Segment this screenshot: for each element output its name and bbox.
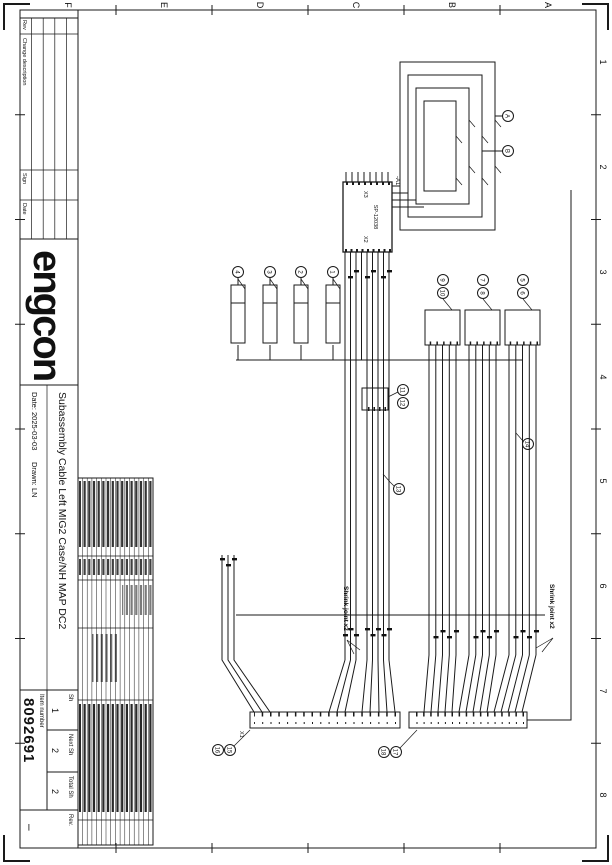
revision-header: Change description	[21, 38, 27, 85]
terminal-refs: A B	[482, 111, 514, 157]
ref-circle-label: 6	[519, 291, 525, 295]
grid-letter: C	[351, 2, 361, 9]
title-block: Rev Change description Sign Date engcon …	[20, 10, 78, 848]
grid-number: 4	[598, 374, 608, 379]
sheet-label: Sh	[67, 694, 73, 701]
ref-circle-label: 18	[380, 749, 386, 756]
ref-circle-label: 1	[329, 270, 335, 274]
ref-circle-label: 2	[297, 270, 303, 274]
item-number-label: Item number	[38, 694, 44, 728]
connector-strip-1: X1 15 16	[213, 712, 401, 756]
grid-number: 3	[598, 269, 608, 274]
ref-circle-label: B	[504, 149, 510, 153]
five-pin-connectors: 5 6 7 8 9 10	[425, 275, 540, 346]
grid-number: 8	[598, 792, 608, 797]
ref-circle-label: 17	[392, 749, 398, 756]
grid-letter: F	[63, 2, 73, 8]
ref-circle-label: 14	[524, 441, 530, 448]
sheet-value: 1	[50, 708, 60, 713]
grid-letter: E	[159, 2, 169, 8]
next-sheet-value: 2	[50, 748, 60, 753]
ref-circle-label: 13	[395, 486, 401, 493]
total-sheet-label: Total Sh	[67, 776, 73, 798]
grid-number: 5	[598, 478, 608, 483]
shrink-joint-label: Shrink joint x2	[548, 584, 555, 629]
drawn-label: Drawn:	[30, 462, 39, 486]
ref-circle-label: 16	[214, 747, 220, 754]
revision-table: Rev Change description Sign Date	[20, 18, 78, 239]
ref-circle-label: 8	[479, 291, 485, 295]
grid-number: 2	[598, 164, 608, 169]
engcon-logo: engcon	[25, 250, 69, 380]
item-number-value: 8092691	[20, 698, 37, 763]
date-value: 2025-03-03	[30, 412, 39, 450]
schematic-svg: A B C D E F 1 2 3 4 5 6 7 8	[0, 0, 612, 865]
date-label: Date:	[30, 392, 39, 410]
revision-header: Rev	[21, 20, 27, 30]
shrink-joint-label: Shrink joint x2	[342, 586, 349, 631]
tap-refs: 13 14	[383, 433, 534, 495]
valve-symbols: 1 2 3 4	[231, 267, 340, 344]
ref-circle-label: 10	[439, 290, 445, 297]
landscape-drawing: A B C D E F 1 2 3 4 5 6 7 8	[0, 0, 612, 865]
grid-letter: A	[543, 2, 553, 8]
device-connector-right: X2	[362, 236, 368, 243]
total-sheet-value: 2	[50, 789, 60, 794]
ref-circle-label: A	[504, 114, 510, 118]
drawing-title: Subassembly Cable Left MIG2 Case/NH MAP …	[56, 392, 68, 629]
ref-circle-label: 15	[226, 747, 232, 754]
drawn-value: LN	[30, 488, 39, 498]
ref-circle-label: 5	[519, 278, 525, 282]
c-connector: 11 12	[362, 385, 409, 411]
revision-header: Sign	[21, 173, 27, 184]
connector-strip-2: 17 18	[379, 712, 528, 758]
grid-number: 7	[598, 688, 608, 693]
ref-circle-label: 3	[266, 270, 272, 274]
grid-number: 6	[598, 583, 608, 588]
rev-value: –	[23, 824, 37, 831]
ref-circle-label: 9	[439, 278, 445, 282]
grid-letter: B	[447, 2, 457, 8]
revision-header: Date	[21, 203, 27, 215]
next-sheet-label: Next Sh	[67, 734, 73, 755]
device-designator: -A1	[394, 176, 400, 186]
shrink-joint-labels: Shrink joint x2 Shrink joint x2	[342, 584, 555, 654]
ref-circle-label: 7	[479, 278, 485, 282]
grid-number: 1	[598, 59, 608, 64]
device-part-number: SP-12038	[372, 205, 378, 229]
ref-circle-label: 12	[399, 400, 405, 407]
grid-letter: D	[255, 2, 265, 9]
wire-table	[78, 478, 153, 845]
device-block: -A1 X3 X2 SP-12038	[343, 172, 400, 264]
ref-circle-label: 11	[399, 387, 405, 394]
ref-circle-label: 4	[234, 270, 240, 274]
rev-label: Rev.	[67, 814, 73, 826]
device-connector-left: X3	[362, 191, 368, 198]
wire-code-marks	[220, 270, 539, 638]
routing-loops	[392, 62, 501, 230]
drawing-sheet: A B C D E F 1 2 3 4 5 6 7 8	[0, 0, 612, 865]
